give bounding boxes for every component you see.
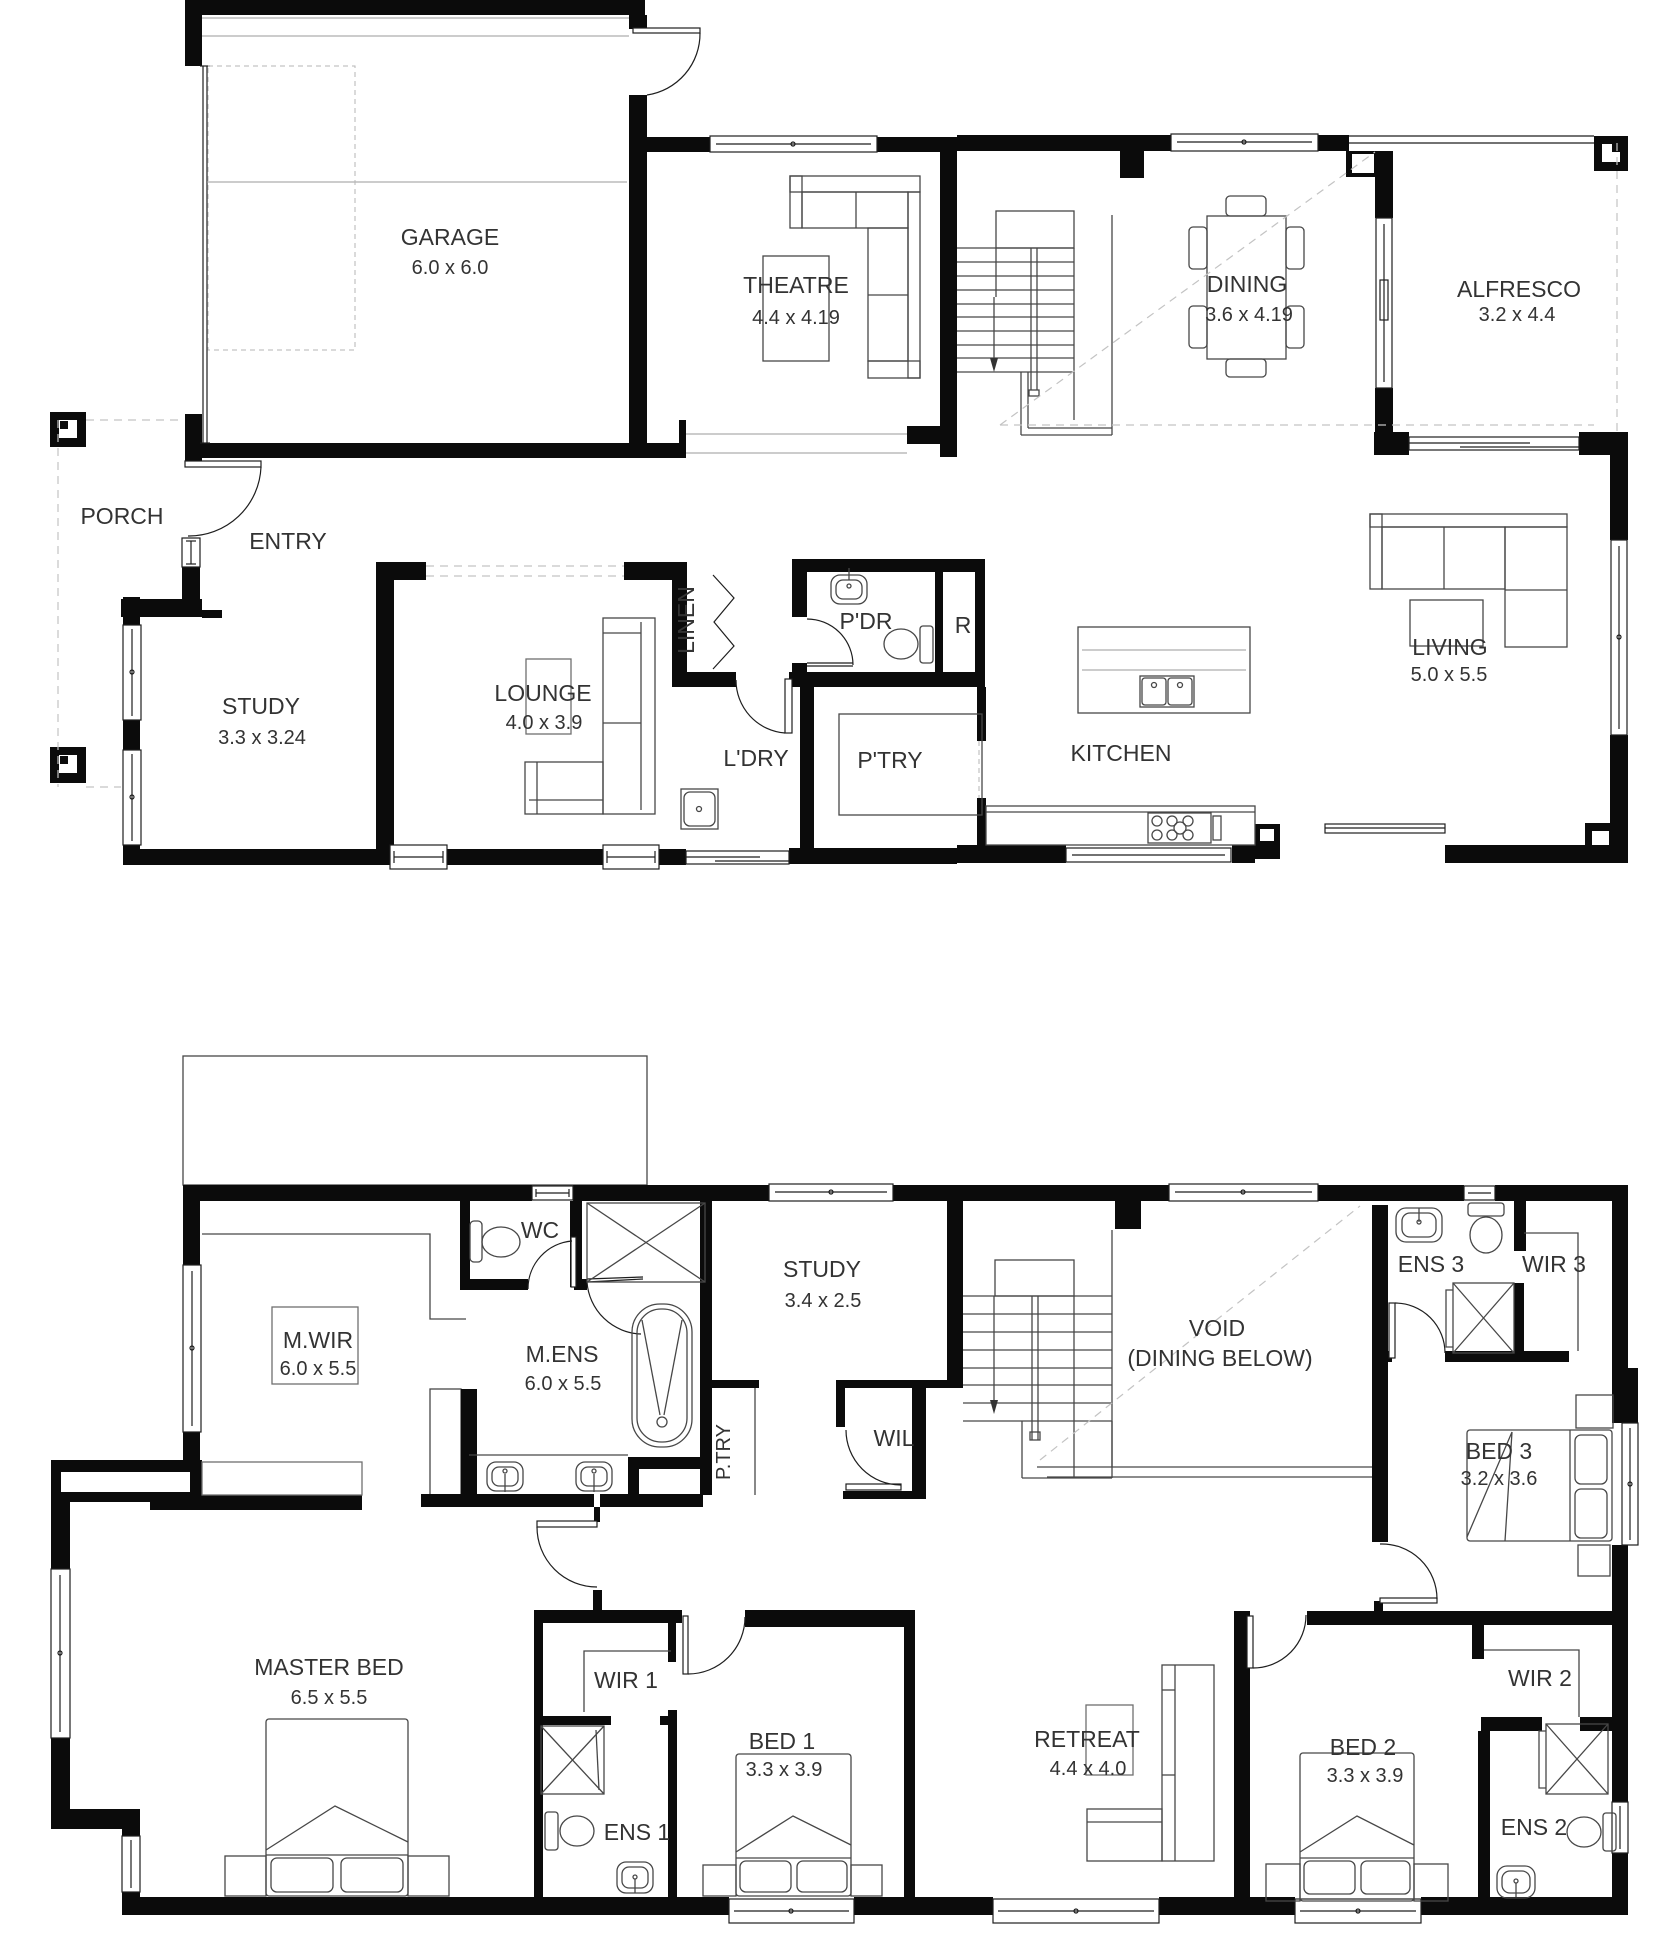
svg-text:RETREAT: RETREAT [1034, 1726, 1140, 1752]
svg-text:6.0 x 5.5: 6.0 x 5.5 [525, 1373, 602, 1395]
svg-text:3.3 x 3.24: 3.3 x 3.24 [218, 727, 306, 749]
svg-text:LOUNGE: LOUNGE [494, 680, 591, 706]
svg-text:PORCH: PORCH [80, 503, 163, 529]
svg-text:THEATRE: THEATRE [743, 272, 849, 298]
svg-text:VOID: VOID [1189, 1315, 1245, 1341]
svg-text:ALFRESCO: ALFRESCO [1457, 276, 1581, 302]
svg-text:P'DR: P'DR [840, 608, 893, 634]
svg-text:4.0 x 3.9: 4.0 x 3.9 [506, 712, 583, 734]
svg-text:BED 2: BED 2 [1330, 1734, 1396, 1760]
svg-text:WIR 1: WIR 1 [594, 1667, 658, 1693]
svg-text:ENS 3: ENS 3 [1398, 1251, 1464, 1277]
svg-text:BED 1: BED 1 [749, 1728, 815, 1754]
svg-text:5.0 x 5.5: 5.0 x 5.5 [1411, 664, 1488, 686]
svg-text:GARAGE: GARAGE [401, 224, 499, 250]
svg-text:(DINING BELOW): (DINING BELOW) [1127, 1345, 1312, 1371]
svg-text:3.2 x 3.6: 3.2 x 3.6 [1461, 1468, 1538, 1490]
svg-text:6.0 x 5.5: 6.0 x 5.5 [280, 1358, 357, 1380]
svg-text:P.TRY: P.TRY [713, 1424, 735, 1480]
svg-text:M.ENS: M.ENS [526, 1341, 599, 1367]
svg-text:4.4 x 4.0: 4.4 x 4.0 [1050, 1758, 1127, 1780]
svg-text:ENTRY: ENTRY [249, 528, 327, 554]
svg-text:BED 3: BED 3 [1466, 1438, 1532, 1464]
svg-text:WIL: WIL [874, 1425, 915, 1451]
svg-text:M.WIR: M.WIR [283, 1327, 353, 1353]
svg-text:WIR 2: WIR 2 [1508, 1665, 1572, 1691]
svg-text:R: R [955, 612, 972, 638]
svg-text:KITCHEN: KITCHEN [1071, 740, 1172, 766]
svg-text:4.4 x 4.19: 4.4 x 4.19 [752, 307, 840, 329]
svg-text:ENS 1: ENS 1 [604, 1819, 670, 1845]
svg-text:6.5 x 5.5: 6.5 x 5.5 [291, 1687, 368, 1709]
svg-text:3.3 x 3.9: 3.3 x 3.9 [746, 1759, 823, 1781]
svg-text:3.3 x 3.9: 3.3 x 3.9 [1327, 1765, 1404, 1787]
svg-text:LINEN: LINEN [673, 586, 699, 654]
svg-text:LIVING: LIVING [1412, 634, 1487, 660]
svg-text:STUDY: STUDY [783, 1256, 861, 1282]
svg-text:6.0 x 6.0: 6.0 x 6.0 [412, 257, 489, 279]
svg-text:P'TRY: P'TRY [857, 747, 922, 773]
svg-text:WC: WC [521, 1217, 559, 1243]
svg-text:STUDY: STUDY [222, 693, 300, 719]
svg-text:L'DRY: L'DRY [723, 745, 788, 771]
svg-text:DINING: DINING [1207, 271, 1288, 297]
svg-text:MASTER BED: MASTER BED [254, 1654, 404, 1680]
svg-text:3.2 x 4.4: 3.2 x 4.4 [1479, 304, 1556, 326]
svg-text:ENS 2: ENS 2 [1501, 1814, 1567, 1840]
svg-text:3.6 x 4.19: 3.6 x 4.19 [1205, 304, 1293, 326]
svg-text:3.4 x 2.5: 3.4 x 2.5 [785, 1290, 862, 1312]
svg-text:WIR 3: WIR 3 [1522, 1251, 1586, 1277]
